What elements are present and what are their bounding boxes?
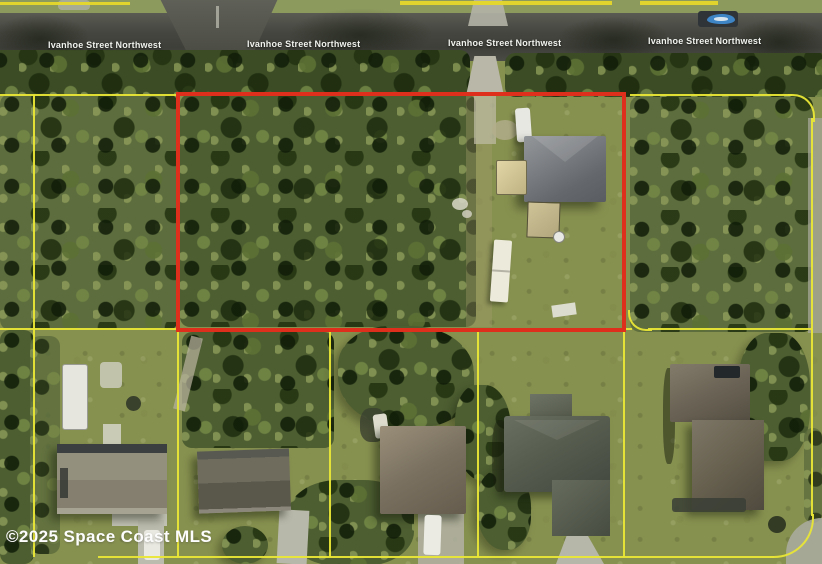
walk-pad	[103, 424, 121, 446]
parcel-line-top-c	[640, 1, 718, 5]
house-roof-5-main	[670, 364, 750, 422]
tree-line-roadside	[0, 50, 470, 96]
street-label-2: Ivanhoe Street Northwest	[247, 39, 360, 49]
parked-car-dark	[714, 366, 740, 378]
parcel-line-v-east	[811, 118, 813, 516]
small-tree	[222, 526, 268, 564]
map-canvas[interactable]: Ivanhoe Street Northwest Ivanhoe Street …	[0, 0, 822, 564]
roof-edge-marks	[60, 468, 68, 498]
house-roof-5-wing	[692, 420, 764, 510]
white-structure	[100, 362, 122, 388]
road-centerline-dash	[216, 6, 219, 28]
tree-canopy-west-parcel	[0, 94, 178, 330]
house-roof-3	[380, 426, 466, 514]
street-label-3: Ivanhoe Street Northwest	[448, 38, 561, 48]
parcel-line-top-b	[400, 1, 612, 5]
tree-cluster	[182, 332, 334, 448]
boat-hull	[707, 14, 735, 24]
street-label-4: Ivanhoe Street Northwest	[648, 36, 761, 46]
tree-big-round	[338, 326, 474, 428]
rv-trailer	[62, 364, 88, 430]
tree-line-roadside	[505, 53, 822, 97]
tree-strip-east-edge	[804, 428, 822, 523]
tree-canopy-east-parcel	[630, 96, 813, 332]
parcel-line-v5	[623, 332, 625, 557]
parcel-line-h-east	[630, 94, 792, 96]
house-roof-2	[197, 448, 291, 513]
house-roof-west	[57, 444, 167, 514]
driveway-apron-subject	[466, 56, 504, 96]
parked-car-3	[423, 515, 441, 556]
parcel-line-v4	[477, 330, 479, 557]
subject-parcel-outline	[176, 92, 626, 332]
roof-ridge-highlight	[514, 420, 600, 440]
street-label-1: Ivanhoe Street Northwest	[48, 40, 161, 50]
mls-watermark: ©2025 Space Coast MLS	[6, 527, 212, 547]
driveway-4	[556, 532, 604, 564]
parcel-line-v2	[177, 330, 179, 557]
parcel-line-v1	[33, 95, 35, 557]
boat-on-trailer	[698, 11, 738, 27]
parcel-line-h-bottom	[98, 556, 774, 558]
parcel-line-h-west	[0, 94, 178, 96]
boat-deck	[714, 17, 728, 21]
house-roof-4-wing-south	[552, 480, 610, 536]
parcel-line-v3	[329, 330, 331, 557]
vehicles-row-dark	[672, 498, 746, 512]
septic-lid	[126, 396, 141, 411]
parcel-line-top-a	[0, 2, 130, 5]
parcel-line-h-mid-east	[648, 328, 812, 330]
